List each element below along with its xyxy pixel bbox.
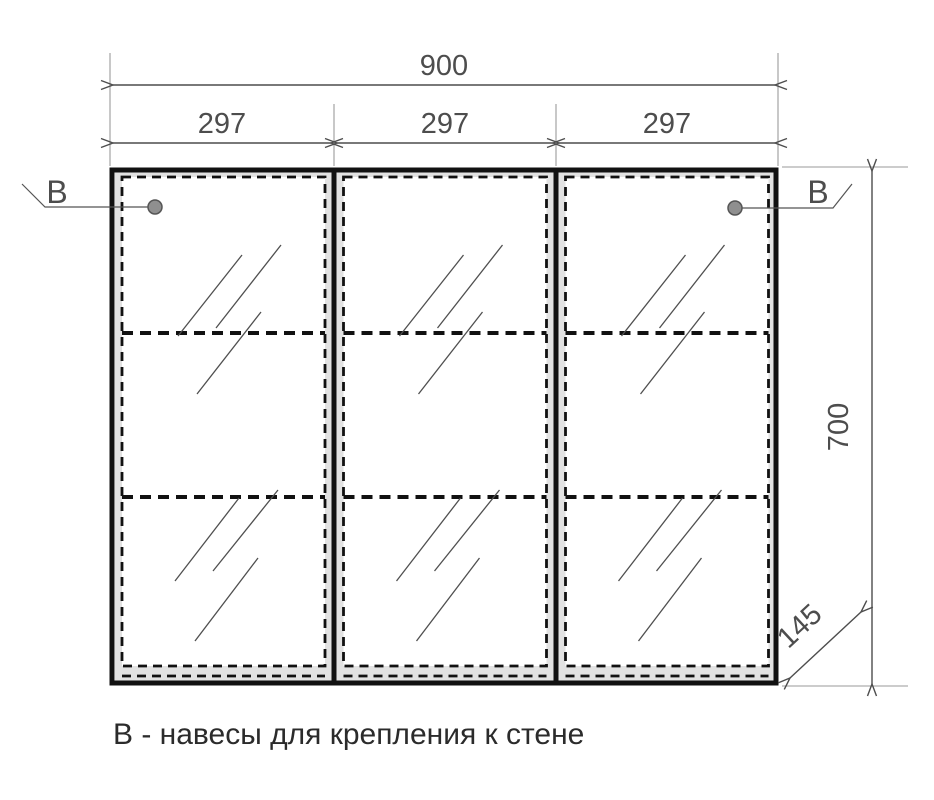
dimension-door-width-3-value: 297 [643, 108, 691, 140]
dimension-total-width: 900 [113, 50, 775, 85]
dimension-door-width-2: 297 [337, 108, 553, 143]
dimension-door-width-3: 297 [559, 108, 775, 143]
dimension-depth-value: 145 [771, 598, 828, 654]
door-panel-1 [115, 171, 332, 682]
dimension-door-width-2-value: 297 [421, 108, 469, 140]
mounting-point-left [148, 200, 162, 214]
dimension-total-width-value: 900 [420, 50, 468, 82]
dimension-depth: 145 [771, 598, 861, 678]
dimension-door-width-1-value: 297 [198, 108, 246, 140]
mounting-point-right [728, 201, 742, 215]
dimension-door-width-1: 297 [113, 108, 331, 143]
callout-left-label: В [46, 174, 67, 210]
dimension-height-value: 700 [823, 403, 855, 451]
note-text: В - навесы для крепления к стене [113, 718, 584, 751]
door-panel-2 [337, 171, 554, 682]
dimension-height: 700 [823, 171, 872, 684]
technical-drawing: 900 297 297 297 700 145 В В [0, 0, 934, 800]
door-panel-3 [559, 171, 776, 682]
callout-right-label: В [807, 174, 828, 210]
